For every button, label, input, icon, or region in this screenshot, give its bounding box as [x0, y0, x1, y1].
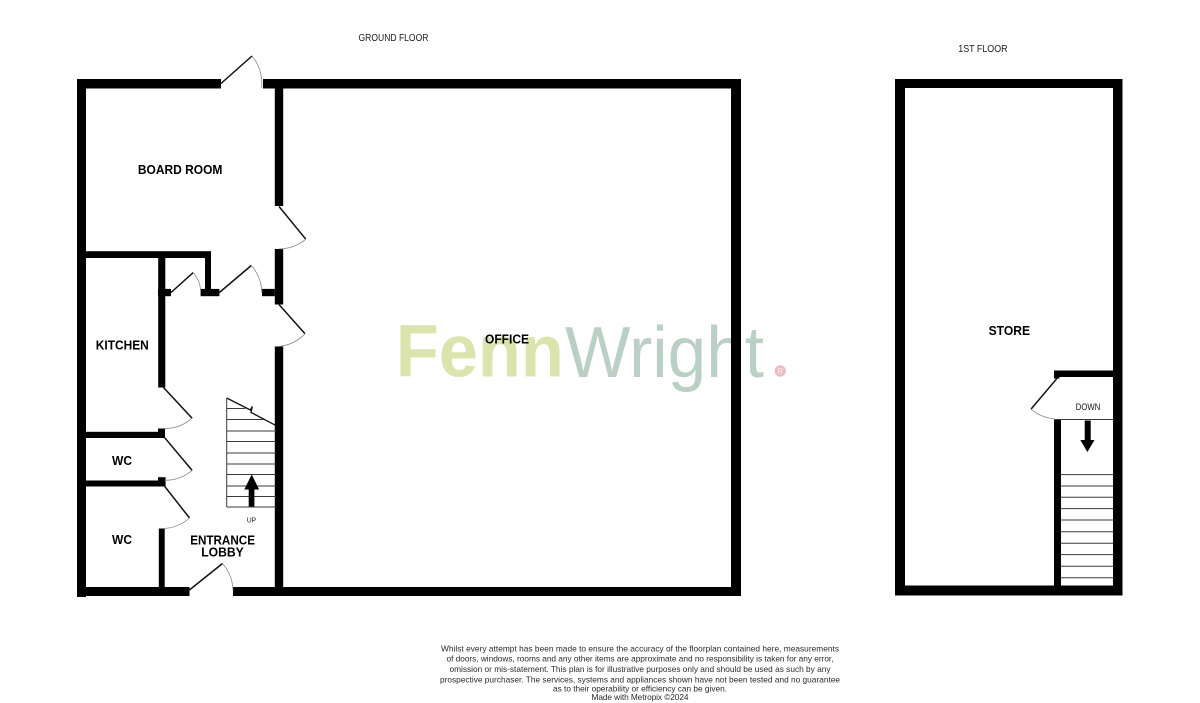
svg-text:UP: UP	[247, 518, 257, 525]
svg-text:Made with Metropix ©2024: Made with Metropix ©2024	[592, 692, 689, 702]
svg-text:STORE: STORE	[989, 324, 1031, 338]
svg-text:WC: WC	[112, 533, 132, 547]
svg-text:OFFICE: OFFICE	[485, 333, 529, 347]
svg-text:R: R	[777, 367, 783, 376]
svg-text:Whilst every attempt has been: Whilst every attempt has been made to en…	[441, 643, 839, 653]
svg-text:LOBBY: LOBBY	[201, 545, 244, 559]
svg-text:1ST FLOOR: 1ST FLOOR	[958, 43, 1007, 55]
svg-text:DOWN: DOWN	[1076, 402, 1101, 412]
svg-text:of doors, windows, rooms and a: of doors, windows, rooms and any other i…	[447, 654, 834, 664]
svg-text:Fenn: Fenn	[396, 311, 564, 393]
svg-text:KITCHEN: KITCHEN	[96, 338, 149, 352]
svg-text:WC: WC	[112, 454, 132, 468]
svg-text:omission or mis-statement. Thi: omission or mis-statement. This plan is …	[450, 664, 832, 674]
svg-text:GROUND FLOOR: GROUND FLOOR	[359, 32, 429, 44]
svg-text:BOARD ROOM: BOARD ROOM	[138, 163, 223, 177]
